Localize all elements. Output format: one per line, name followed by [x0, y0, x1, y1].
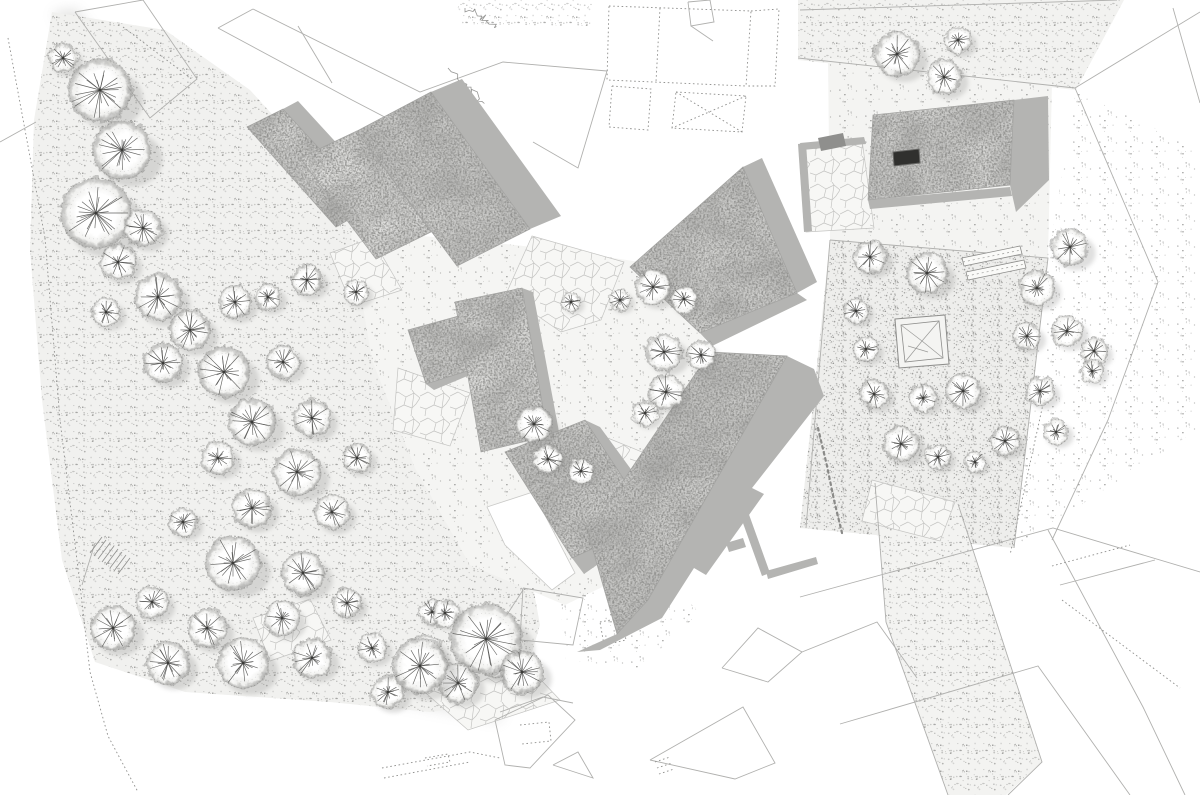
tree-trunk	[62, 57, 65, 60]
parcel-line	[650, 707, 775, 779]
tree-trunk	[251, 421, 254, 424]
tree-trunk	[896, 53, 899, 56]
roof-skylight	[893, 149, 920, 166]
tree-trunk	[521, 671, 524, 674]
tree-trunk	[282, 361, 285, 364]
parcel-line	[298, 26, 332, 83]
parcel-line-dotted	[382, 752, 500, 768]
tree-trunk	[957, 39, 960, 42]
tree-trunk	[663, 351, 666, 354]
tree-trunk	[1069, 246, 1072, 249]
tree-trunk	[142, 227, 145, 230]
tree-trunk	[281, 617, 284, 620]
tree-trunk	[232, 562, 235, 565]
tree-trunk	[1039, 390, 1042, 393]
tree-trunk	[962, 390, 965, 393]
tree-trunk	[157, 296, 160, 299]
tree-trunk	[311, 657, 314, 660]
site-plan-image	[0, 0, 1200, 795]
tree-trunk	[296, 471, 299, 474]
tree-trunk	[206, 627, 209, 630]
parcel-line-dotted	[659, 769, 674, 774]
tree-trunk	[485, 638, 488, 641]
parcel-line	[0, 122, 36, 142]
tree-trunk	[99, 89, 102, 92]
tree-trunk	[900, 443, 903, 446]
parcel-line-dotted	[676, 92, 742, 132]
tree-trunk	[302, 572, 305, 575]
tree-trunk	[533, 423, 536, 426]
tree-trunk	[121, 149, 124, 152]
tree-trunk	[162, 362, 165, 365]
parcel-line-dotted	[657, 763, 672, 768]
tree-trunk	[1055, 431, 1058, 434]
tree-trunk	[267, 296, 270, 299]
tree-trunk	[1004, 440, 1007, 443]
tree-trunk	[1093, 350, 1096, 353]
tree-trunk	[974, 461, 977, 464]
tree-trunk	[580, 470, 583, 473]
roof-north-east-hall	[868, 100, 1014, 200]
tree-trunk	[683, 298, 686, 301]
parcel-line-dotted	[609, 86, 651, 130]
parcel-line	[533, 71, 607, 168]
tree-trunk	[182, 521, 185, 524]
tree-trunk	[665, 391, 668, 394]
garden-wall	[766, 557, 818, 579]
tree-trunk	[570, 301, 573, 304]
tree-trunk	[926, 272, 929, 275]
parcel-line-dotted	[520, 722, 551, 744]
tree-trunk	[242, 662, 245, 665]
tree-trunk	[457, 682, 460, 685]
tree-trunk	[943, 76, 946, 79]
parcel-line	[218, 9, 253, 28]
site-plan-canvas	[0, 0, 1200, 795]
parcel-line	[688, 0, 714, 26]
tree-trunk	[356, 457, 359, 460]
parcel-line-dotted	[425, 754, 450, 766]
tree-trunk	[189, 329, 192, 332]
tree-trunk	[922, 397, 925, 400]
parcel-line-dotted	[384, 762, 470, 778]
tree-trunk	[547, 458, 550, 461]
tree-trunk	[387, 691, 390, 694]
tree-trunk	[700, 354, 703, 357]
tree-trunk	[873, 393, 876, 396]
roof-grain	[868, 100, 1014, 200]
tree-trunk	[1066, 330, 1069, 333]
parcel-line	[553, 752, 593, 778]
parcel-line-dotted	[1062, 600, 1180, 688]
tree-trunk	[937, 456, 940, 459]
tree-trunk	[619, 299, 622, 302]
tree-trunk	[1091, 370, 1094, 373]
tree-trunk	[865, 348, 868, 351]
tree-trunk	[95, 212, 98, 215]
tree-trunk	[869, 256, 872, 259]
parcel-line	[722, 628, 802, 682]
tree-trunk	[105, 311, 108, 314]
parcel-line-dotted	[746, 9, 779, 86]
parcel-line-dotted	[656, 8, 660, 82]
tree-trunk	[251, 507, 254, 510]
tree-trunk	[112, 627, 115, 630]
tree-trunk	[371, 647, 374, 650]
tree-trunk	[346, 602, 349, 605]
parcel-line-dotted	[1052, 545, 1130, 566]
tree-trunk	[217, 457, 220, 460]
tree-trunk	[652, 286, 655, 289]
tree-trunk	[306, 279, 309, 282]
tree-trunk	[234, 301, 237, 304]
plan-layers	[0, 0, 1200, 795]
tree-trunk	[223, 371, 226, 374]
tree-trunk	[167, 662, 170, 665]
tree-trunk	[855, 310, 858, 313]
tree-trunk	[1036, 287, 1039, 290]
tree-trunk	[311, 417, 314, 420]
parcel-line	[1060, 560, 1155, 585]
tree-trunk	[355, 291, 358, 294]
tree-trunk	[151, 601, 154, 604]
parcel-line-dotted	[607, 6, 751, 86]
tree-trunk	[419, 665, 422, 668]
tree-trunk	[644, 412, 647, 415]
tree-trunk	[1026, 335, 1029, 338]
tree-trunk	[331, 511, 334, 514]
parcel-line	[1173, 8, 1200, 103]
tree-trunk	[444, 612, 447, 615]
parcel-line	[691, 26, 713, 41]
tree-trunk	[117, 261, 120, 264]
